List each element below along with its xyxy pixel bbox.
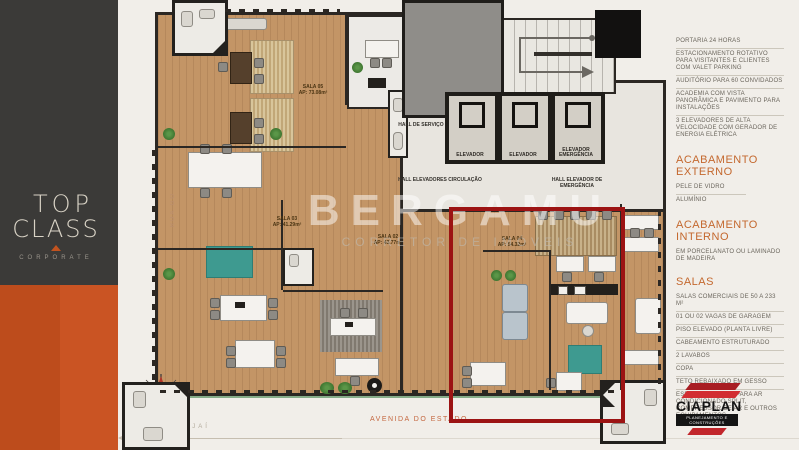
feature-item: 3 ELEVADORES DE ALTA VELOCIDADE COM GERA… (676, 116, 784, 142)
chair (254, 58, 264, 68)
room-area: AP: 41.29m² (273, 222, 302, 228)
cabinet (225, 18, 267, 30)
desk (235, 340, 275, 368)
chair (268, 310, 278, 320)
spec-item: ALUMÍNIO (676, 195, 784, 207)
spec-item: SALAS COMERCIAIS DE 50 A 233 M² (676, 292, 784, 312)
desk (335, 358, 379, 376)
meeting-desk (188, 152, 262, 188)
chair (630, 228, 640, 238)
plant-icon (163, 268, 175, 280)
chair (226, 346, 236, 356)
room-area: AP: 73.08m² (299, 90, 328, 96)
kitchen-counter (368, 78, 386, 88)
spec-item: PELE DE VIDRO (676, 182, 746, 195)
toilet-icon (644, 389, 657, 406)
desk (230, 112, 252, 144)
sink-icon (143, 427, 163, 441)
hall-emergency-label: HALL ELEVADOR DE EMERGÊNCIA (535, 177, 619, 189)
interior-wall (283, 290, 383, 292)
elevator-shaft-emergency: ELEVADOR EMERGÊNCIA (551, 92, 605, 164)
floor-plan: ELEVADOR ELEVADOR ELEVADOR EMERGÊNCIA HA… (130, 0, 675, 450)
chair (350, 376, 360, 386)
spec-item: PISO ELEVADO (PLANTA LIVRE) (676, 325, 784, 338)
interior-wall (158, 146, 346, 148)
interior-wall (345, 15, 347, 105)
spec-item: 2 LAVABOS (676, 351, 784, 364)
elevator-label: ELEVADOR (447, 153, 493, 158)
hall-circulation-label: HALL ELEVADORES CIRCULAÇÃO (398, 177, 482, 183)
plant-icon (163, 128, 175, 140)
chair (254, 74, 264, 84)
sink-icon (199, 9, 215, 19)
lavabo-pod (283, 248, 314, 286)
window-ticks (658, 210, 661, 385)
plant-icon (270, 128, 282, 140)
plant-icon (352, 62, 363, 73)
chair (276, 358, 286, 368)
window-ticks (152, 150, 155, 380)
toilet-icon (181, 11, 193, 27)
teal-rug (206, 246, 253, 278)
roof-shaft (595, 10, 641, 58)
brand-sidebar: TOP CLASS CORPORATE (0, 0, 118, 450)
elevator-shaft-2: ELEVADOR (498, 92, 552, 164)
section-title-acabamento-interno: ACABAMENTO INTERNO (676, 219, 756, 243)
tub-icon (393, 132, 403, 150)
chair (210, 298, 220, 308)
desk (624, 237, 659, 252)
spec-item: EM PORCELANATO OU LAMINADO DE MADEIRA (676, 247, 784, 266)
feature-item: PORTARIA 24 HORAS (676, 36, 784, 49)
window-ticks (225, 9, 340, 12)
feature-item: AUDITÓRIO PARA 60 CONVIDADOS (676, 76, 784, 89)
elevator-label: ELEVADOR EMERGÊNCIA (553, 148, 599, 158)
chair (358, 308, 368, 318)
sidebar-orange-panel-right (60, 285, 118, 450)
logo-shape-bottom (687, 428, 726, 435)
chair (226, 358, 236, 368)
chair (644, 228, 654, 238)
chair (340, 308, 350, 318)
logo-shape-back (685, 383, 740, 390)
elevator-car (459, 102, 485, 128)
logo-triangle-icon (51, 245, 61, 251)
brand-name: CIAPLAN (676, 399, 746, 414)
ciaplan-logo: CIAPLAN PLANEJAMENTO E CONSTRUÇÕES (676, 383, 746, 435)
street-label-left: RUA GO (170, 192, 176, 227)
hall-service-label: HALL DE SERVIÇO (398, 122, 444, 128)
feature-item: ESTACIONAMENTO ROTATIVO PARA VISITANTES … (676, 49, 784, 76)
elevator-car (565, 102, 591, 128)
logo-word-top: TOP (14, 192, 112, 216)
chair (276, 346, 286, 356)
desk (624, 350, 659, 365)
toilet-icon (133, 391, 146, 408)
room-label-sala05: SALA 05 AP: 73.08m² (283, 84, 343, 96)
desk (365, 40, 399, 58)
elevator-label: ELEVADOR (500, 153, 546, 158)
chair (218, 62, 228, 72)
spec-item: CABEAMENTO ESTRUTURADO (676, 338, 784, 351)
chair (210, 310, 220, 320)
elevator-car (512, 102, 538, 128)
chair (268, 298, 278, 308)
spec-item: COPA (676, 364, 784, 377)
desk (624, 215, 659, 230)
logo-word-class: CLASS (0, 216, 112, 242)
marketing-floorplan-page: TOP CLASS CORPORATE (0, 0, 799, 450)
brand-tagline: PLANEJAMENTO E CONSTRUÇÕES (676, 414, 738, 426)
bathroom-pod-topleft (172, 0, 228, 56)
elevator-shaft-1: ELEVADOR (445, 92, 499, 164)
desk (230, 52, 252, 84)
section-title-salas: SALAS (676, 276, 756, 288)
room-area: AP: 43.77m² (374, 240, 403, 246)
desk (330, 318, 376, 336)
chair (254, 118, 264, 128)
room-label-sala02: SALA 02 AP: 43.77m² (358, 234, 418, 246)
chair (370, 58, 380, 68)
chair (382, 58, 392, 68)
desk (220, 295, 267, 321)
laptop-icon (345, 322, 353, 327)
sidebar-orange-panel-left (0, 285, 60, 450)
spec-item: 01 OU 02 VAGAS DE GARAGEM (676, 312, 784, 325)
door-corner (213, 41, 225, 53)
chair (200, 188, 210, 198)
room-label-sala03: SALA 03 AP: 41.29m² (257, 216, 317, 228)
feature-item: ACADEMIA COM VISTA PANORÂMICA E PAVIMENT… (676, 89, 784, 116)
specs-column: PORTARIA 24 HORAS ESTACIONAMENTO ROTATIV… (676, 36, 790, 423)
highlight-outline-sala04 (449, 207, 625, 423)
sink-icon (611, 423, 629, 435)
topclass-logo: TOP CLASS CORPORATE (0, 192, 112, 261)
section-title-acabamento-externo: ACABAMENTO EXTERNO (676, 154, 756, 178)
chair (222, 188, 232, 198)
toilet-icon (289, 254, 299, 267)
interior-wall (158, 248, 283, 250)
logo-shape-front (681, 391, 740, 398)
chair (254, 134, 264, 144)
logo-subtitle: CORPORATE (0, 255, 112, 261)
laptop-icon (235, 302, 245, 308)
